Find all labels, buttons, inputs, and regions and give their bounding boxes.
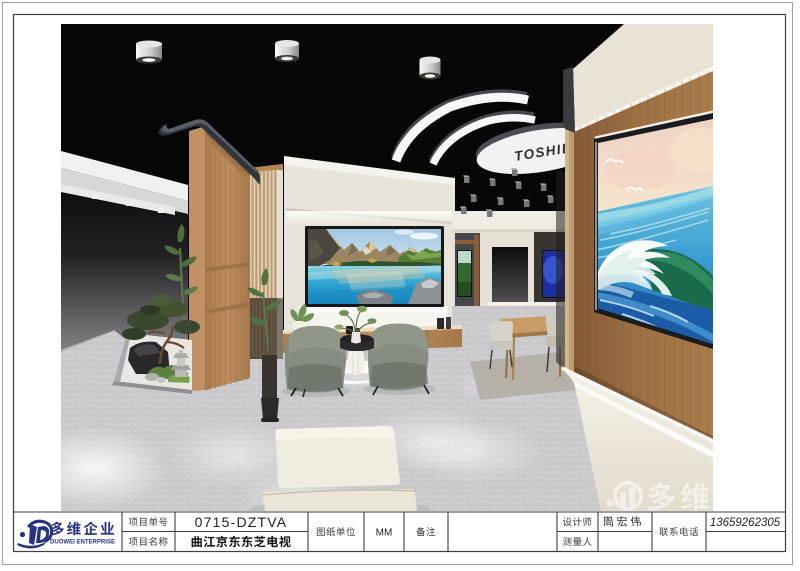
svg-text:13659262305: 13659262305 (710, 517, 781, 529)
svg-text:0715-DZTVA: 0715-DZTVA (195, 514, 288, 530)
svg-text:DUOWEI ENTERPRISE: DUOWEI ENTERPRISE (50, 539, 115, 546)
svg-text:MM: MM (376, 528, 393, 539)
